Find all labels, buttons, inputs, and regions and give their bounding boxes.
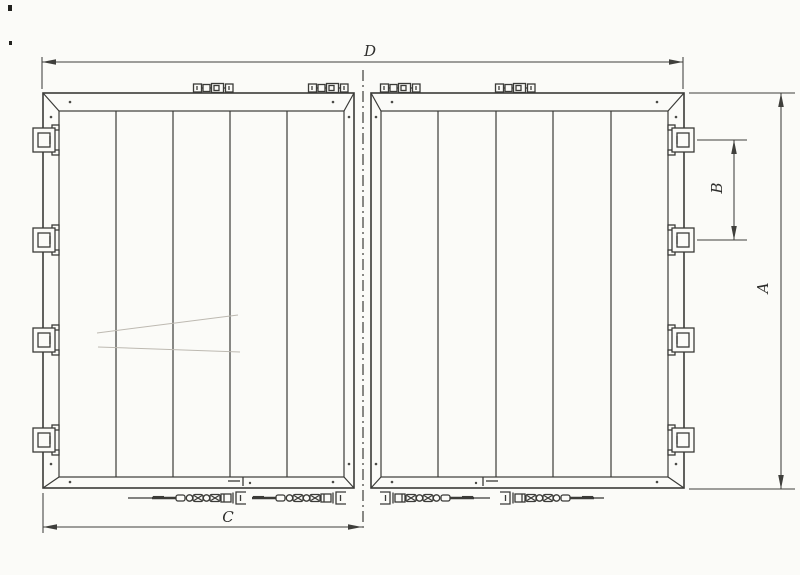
right-leaf-plank-lines [438, 111, 611, 477]
left-leaf-outline [43, 93, 354, 488]
bottom-latches [128, 477, 604, 504]
arrowhead-icon [669, 59, 683, 65]
drawing-sheet: D A B C [0, 0, 800, 575]
hinge-icon [33, 425, 59, 455]
bottom-latch-icon [252, 492, 346, 504]
leader-line [98, 347, 240, 352]
right-hinges [668, 125, 694, 455]
right-leaf-mitres [371, 93, 684, 488]
top-clamp-icon [193, 84, 233, 93]
right-leaf-rivets [375, 101, 678, 484]
hinge-icon [33, 225, 59, 255]
arrowhead-icon [731, 140, 737, 154]
dimension-overall-height: A [689, 93, 795, 489]
left-leaf-mitres [43, 93, 354, 488]
leader-line [97, 315, 238, 333]
right-leaf-outline [371, 93, 684, 488]
top-clamp-icon [380, 84, 420, 93]
hinge-icon [33, 325, 59, 355]
hinge-icon [33, 125, 59, 155]
scan-speck [9, 41, 12, 45]
arrowhead-icon [778, 475, 784, 489]
top-clamp-icon [495, 84, 535, 93]
dimension-label-d: D [363, 42, 376, 60]
left-leaf-inner-frame [59, 111, 344, 477]
arrowhead-icon [778, 93, 784, 107]
top-clamps [193, 84, 535, 93]
hinge-icon [668, 125, 694, 155]
left-hinges [33, 125, 59, 455]
dimension-label-c: C [222, 508, 234, 526]
bottom-latch-icon [152, 492, 246, 504]
arrowhead-icon [43, 524, 57, 530]
left-leaf-plank-lines [116, 111, 287, 477]
hinge-icon [668, 225, 694, 255]
dimension-hinge-spacing: B [697, 140, 747, 240]
dimension-label-b: B [708, 182, 726, 194]
dimension-label-a: A [754, 282, 772, 295]
dimension-overall-width: D [42, 42, 683, 89]
bottom-latch-icon [380, 492, 474, 504]
bottom-latch-icon [500, 492, 594, 504]
hinge-icon [668, 425, 694, 455]
top-clamp-icon [308, 84, 348, 93]
arrowhead-icon [731, 226, 737, 240]
scan-speck [8, 5, 12, 11]
arrowhead-icon [42, 59, 56, 65]
right-door-leaf [371, 93, 684, 488]
arrowhead-icon [348, 524, 362, 530]
left-leaf-rivets [50, 101, 351, 484]
double-door-technical-drawing: D A B C [0, 0, 800, 575]
left-door-leaf [43, 93, 354, 488]
hinge-icon [668, 325, 694, 355]
right-leaf-inner-frame [381, 111, 668, 477]
